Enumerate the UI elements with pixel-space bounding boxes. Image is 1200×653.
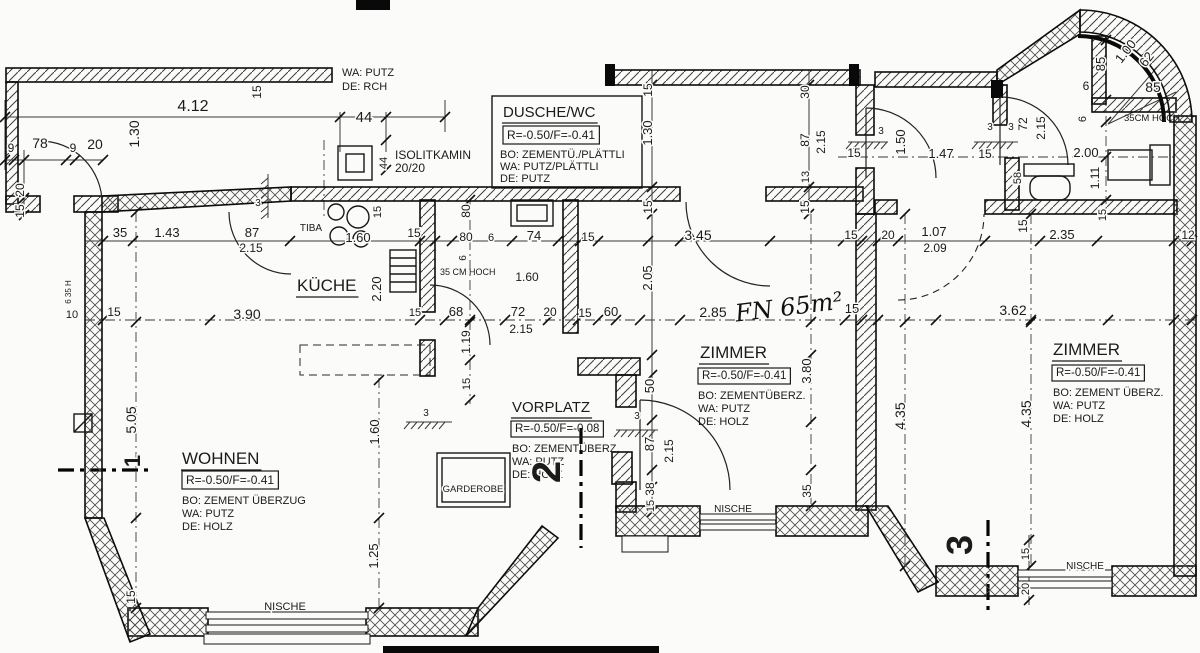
dimension-label: 3	[423, 408, 429, 419]
room-dusche-ceiling: DE: PUTZ	[500, 173, 550, 185]
niche-label: NISCHE	[714, 504, 752, 515]
dimension-label: 30	[798, 85, 812, 99]
wardrobe-inner	[442, 458, 505, 502]
parapet-note-2: 35 CM HOCH	[440, 267, 496, 277]
wall-segment	[578, 358, 640, 375]
wall-segment	[6, 68, 332, 82]
room-dusche-name: DUSCHE/WC	[503, 104, 596, 121]
dimension-label: 15	[641, 83, 655, 97]
black-fill	[383, 646, 659, 653]
window-sill	[622, 536, 668, 552]
section-marker-2: 2	[525, 461, 569, 483]
dimension-label: 1.19	[459, 330, 473, 354]
dimension-label: 1.60	[367, 419, 382, 444]
toilet-bowl	[1030, 176, 1070, 200]
dimension-label: 1.11	[1088, 166, 1102, 189]
wall-segment	[856, 85, 874, 135]
room-wohnen-wall: WA: PUTZ	[182, 508, 234, 520]
dimension-label: 1.60	[345, 230, 370, 245]
stove-burner	[328, 204, 344, 220]
washbasin	[1108, 150, 1152, 180]
parapet-note: 35CM HOCH	[1124, 113, 1180, 124]
dimension-label: 15	[250, 85, 264, 99]
dimension-label: 2.09	[923, 241, 947, 255]
dimension-label: 3	[634, 411, 640, 422]
room-zimmer1-ceiling: DE: HOLZ	[698, 416, 749, 428]
angled-wall-segment	[102, 187, 291, 212]
dimension-label: 60	[604, 304, 618, 319]
window-sill	[1018, 581, 1112, 588]
dimension-label: 38	[643, 482, 657, 496]
toilet-cistern	[1024, 164, 1074, 176]
chimney-flue	[346, 154, 364, 172]
step-hatch-stroke	[642, 430, 648, 437]
dimension-label: 15	[461, 378, 473, 390]
dimension-label: 15	[645, 500, 657, 512]
wall-segment	[563, 200, 578, 333]
dimension-label: 15	[641, 200, 655, 214]
room-zimmer1-floor: BO: ZEMENTÜBERZ.	[698, 390, 806, 402]
step-hatch-stroke	[261, 206, 268, 212]
wall-segment	[420, 200, 435, 312]
black-fill	[849, 64, 859, 86]
room-zimmer2-wall: WA: PUTZ	[1053, 400, 1105, 412]
room-zimmer2-floor: BO: ZEMENT ÜBERZ.	[1053, 387, 1163, 399]
floor-plan-svg: 97892020154.121.30154444WA: PUTZDE: RCHI…	[0, 0, 1200, 653]
dimension-label: 1.47	[928, 146, 953, 161]
step-hatch-stroke	[425, 422, 431, 429]
step-hatch-stroke	[261, 178, 268, 184]
room-zimmer1-name: ZIMMER	[700, 343, 767, 362]
step-hatch-stroke	[614, 430, 620, 437]
dimension-label: 2.05	[640, 265, 655, 290]
step-hatch-stroke	[628, 430, 634, 437]
step-hatch-stroke	[418, 422, 424, 429]
dimension-label: 80	[459, 204, 473, 218]
step-hatch-stroke	[1000, 142, 1006, 149]
window-sill	[206, 625, 368, 632]
dimension-label: 74	[527, 228, 541, 243]
dimension-tick	[675, 315, 685, 325]
room-dusche-floor: BO: ZEMENTÜ./PLÄTTLI	[500, 149, 625, 161]
dimension-label: 3.62	[999, 302, 1026, 318]
dimension-label: 15	[1020, 548, 1032, 560]
door-swing-arc	[686, 202, 770, 286]
dimension-label: 12	[1181, 228, 1195, 242]
wall-segment	[856, 214, 876, 510]
insulated-wall-segment	[1174, 116, 1196, 576]
dimension-label: 3	[255, 198, 261, 209]
chimney-label: 20/20	[395, 161, 425, 175]
step-hatch-stroke	[972, 142, 978, 149]
section-marker-3: 3	[939, 535, 980, 555]
dimension-tick	[806, 465, 816, 475]
step-hatch-stroke	[621, 430, 627, 437]
dimension-label: 87	[798, 133, 812, 147]
dimension-label: 15	[578, 306, 592, 320]
step-hatch-stroke	[993, 142, 999, 149]
dimension-label: 15	[13, 204, 27, 218]
room-zimmer1-level: R=-0.50/F=-0.41	[702, 370, 786, 382]
insulated-wall-segment	[366, 608, 478, 636]
wall-segment	[766, 187, 863, 201]
black-fill	[356, 0, 390, 10]
dimension-label: 15	[798, 200, 812, 214]
dimension-label: 3.90	[233, 306, 260, 322]
dimension-label: 1.60	[515, 270, 539, 284]
wall-segment	[616, 375, 636, 407]
insulated-wall-segment	[936, 566, 1018, 596]
room-vorplatz-name: VORPLATZ	[512, 399, 590, 416]
dimension-label: 15	[407, 226, 421, 240]
dimension-label: 15	[124, 590, 138, 604]
dimension-label: 6	[1083, 79, 1090, 93]
dimension-label: 15	[847, 146, 861, 160]
step-hatch-stroke	[860, 142, 866, 149]
wall-segment	[608, 70, 860, 85]
step-hatch-stroke	[261, 213, 268, 219]
dimension-label: 15	[409, 307, 421, 319]
wall-segment	[875, 72, 997, 87]
room-wohnen-name: WOHNEN	[182, 449, 259, 468]
room-zimmer1-wall: WA: PUTZ	[698, 403, 750, 415]
dimension-label: 15	[581, 230, 595, 244]
step-hatch-stroke	[432, 422, 438, 429]
dimension-label: 15	[107, 305, 121, 319]
room-vorplatz-floor: BO: ZEMENTÜBERZ.	[512, 443, 620, 455]
bath-fixture	[1150, 145, 1170, 185]
step-hatch-stroke	[1007, 142, 1013, 149]
dimension-label: 15	[1016, 219, 1030, 233]
dimension-label: 87	[642, 437, 657, 451]
dimension-label: 15	[978, 147, 992, 161]
dimension-label: 58	[1012, 172, 1024, 184]
dimension-label: 72	[1016, 117, 1030, 131]
dimension-label: 50	[642, 379, 657, 393]
angled-wall-segment	[85, 518, 150, 642]
dimension-label: 68	[449, 304, 463, 319]
dimension-label: 15	[844, 228, 858, 242]
room-vorplatz-level: R=-0.50/F=-0.08	[515, 423, 599, 435]
dimension-label: 15	[372, 206, 384, 218]
dimension-label: 85	[1145, 79, 1161, 95]
dimension-label: 2.00	[1073, 145, 1098, 160]
room-zimmer2-name: ZIMMER	[1053, 340, 1120, 359]
black-fill	[991, 80, 1003, 98]
dimension-label: 10	[66, 309, 78, 321]
dimension-label: 2.85	[699, 304, 726, 320]
dimension-label: 72	[511, 304, 525, 319]
niche-label: NISCHE	[1066, 561, 1104, 572]
dimension-label: 1.07	[921, 224, 946, 239]
shower-tray-inner	[517, 205, 547, 221]
angled-wall-segment	[466, 526, 558, 636]
step-hatch-stroke	[439, 422, 445, 429]
dimension-label: 35	[800, 484, 814, 498]
dimension-label: 6	[488, 232, 494, 244]
room-zimmer2-level: R=-0.50/F=-0.41	[1056, 367, 1140, 379]
dimension-label: 78	[32, 135, 48, 151]
black-fill	[605, 64, 615, 86]
dimension-tick	[635, 315, 645, 325]
dimension-label: 20	[1020, 583, 1032, 595]
room-wohnen-level: R=-0.50/F=-0.41	[186, 473, 274, 487]
insulated-wall-segment	[85, 212, 102, 518]
window-sill	[700, 524, 776, 530]
insulated-wall-segment	[776, 506, 868, 536]
stove-label: TIBA	[300, 223, 323, 234]
dimension-label: 4.35	[892, 402, 908, 429]
dimension-label: 5.05	[123, 406, 139, 433]
wall-note: WA: PUTZ	[342, 67, 394, 79]
dimension-label: 13	[800, 171, 812, 183]
room-wohnen-ceiling: DE: HOLZ	[182, 521, 233, 533]
chimney-label: ISOLITKAMIN	[395, 148, 471, 162]
step-hatch-stroke	[881, 142, 887, 149]
stove-burner	[347, 206, 369, 228]
dimension-label: 6 35 H	[64, 280, 73, 304]
chimney	[338, 146, 372, 180]
dimension-label: 3	[1008, 122, 1014, 133]
step-hatch-stroke	[867, 142, 873, 149]
dimension-label: 2.20	[369, 276, 384, 301]
wall-segment	[612, 452, 632, 484]
wall-note: DE: RCH	[342, 81, 387, 93]
dimension-label: 1.25	[366, 543, 381, 568]
dimension-label: 3	[987, 122, 993, 133]
radiator	[390, 250, 416, 292]
dimension-label: 85	[1093, 57, 1108, 71]
wardrobe	[437, 453, 510, 507]
window-sill	[206, 612, 368, 619]
dimension-label: 87	[245, 225, 259, 240]
window-sill	[204, 634, 370, 644]
dimension-label: 15	[845, 301, 859, 316]
dimension-label: 20	[881, 228, 895, 242]
dimension-label: 4.35	[1018, 400, 1034, 427]
wall-segment	[291, 187, 680, 201]
dimension-label: 2.15	[509, 322, 533, 336]
dimension-label: 35	[113, 225, 127, 240]
step-hatch-stroke	[404, 422, 410, 429]
dimension-label: 9	[70, 141, 77, 155]
dimension-label: 3.80	[799, 358, 814, 383]
wall-segment	[875, 200, 897, 214]
wardrobe-label: GARDEROBE	[443, 484, 504, 495]
dimension-label: 2.15	[1034, 116, 1048, 140]
angled-wall-segment	[866, 506, 938, 592]
labels: 97892020154.121.30154444WA: PUTZDE: RCHI…	[8, 37, 1195, 613]
room-wohnen-floor: BO: ZEMENT ÜBERZUG	[182, 495, 306, 507]
dimension-label: 1.50	[893, 129, 908, 154]
dimension-label: 20	[87, 136, 103, 152]
dimension-label: 44	[356, 109, 373, 126]
step-hatch-stroke	[874, 142, 880, 149]
dimension-label: 6	[1077, 116, 1089, 122]
dimension-label: 3	[878, 126, 884, 137]
dimension-label: 2.15	[239, 241, 263, 255]
dimension-label: 4.12	[177, 98, 208, 115]
dimension-label: 44	[378, 157, 390, 169]
dimension-label: 2.15	[814, 130, 828, 154]
step-hatch-stroke	[411, 422, 417, 429]
room-zimmer2-ceiling: DE: HOLZ	[1053, 413, 1104, 425]
niche-label: NISCHE	[264, 601, 306, 613]
section-marker-1: 1	[120, 455, 145, 467]
dimension-label: 1.30	[126, 120, 142, 147]
dimension-label: 20	[543, 305, 557, 319]
room-kueche-name: KÜCHE	[297, 276, 357, 295]
kitchen-counter	[300, 345, 430, 375]
wall-segment	[856, 168, 874, 214]
dimension-label: 20	[13, 183, 27, 197]
dimension-label: 1.43	[154, 225, 179, 240]
dimension-label: 9	[8, 141, 15, 155]
floor-plan-page: 97892020154.121.30154444WA: PUTZDE: RCHI…	[0, 0, 1200, 653]
handwritten-area-note: FN 65m²	[733, 287, 845, 328]
room-dusche-wall: WA: PUTZ/PLÄTTLI	[500, 161, 599, 173]
dimension-label: 2.15	[662, 439, 676, 463]
dimension-label: 2.35	[1049, 227, 1074, 242]
insulated-wall-segment	[616, 506, 700, 536]
dimension-label: 15	[1097, 209, 1109, 221]
room-dusche-level: R=-0.50/F=-0.41	[507, 128, 595, 142]
dimension-label: 6	[458, 255, 469, 261]
angled-wall-segment	[997, 10, 1080, 85]
dimension-label: 3.45	[684, 227, 711, 243]
dimension-label: 1.30	[640, 120, 655, 145]
dimension-label: 80	[459, 230, 473, 244]
